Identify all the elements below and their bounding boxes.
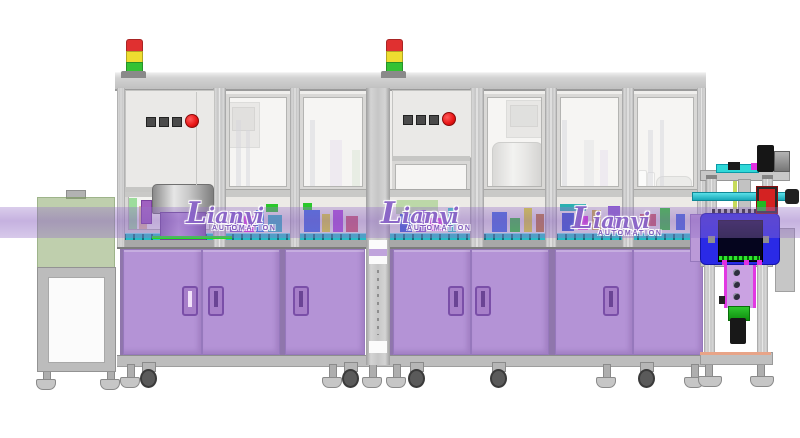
column-hole: [733, 281, 740, 288]
caster-wheel: [138, 362, 158, 390]
gantry-bolt-cap: [762, 175, 773, 179]
square-button[interactable]: [146, 117, 156, 127]
caster-wheel-disc: [140, 369, 157, 388]
leveling-foot: [120, 364, 140, 392]
cabinet-handle[interactable]: [293, 286, 309, 316]
caster-wheel: [488, 362, 508, 390]
foot-base: [362, 377, 382, 388]
foot-base: [322, 377, 342, 388]
cabinet-handle[interactable]: [182, 286, 198, 316]
junction-stripe: [369, 341, 387, 353]
linear-rail-tube: [692, 192, 798, 201]
control-panel-module1: [125, 90, 215, 189]
handle-slot: [188, 291, 192, 307]
gantry-black-slider: [728, 162, 740, 170]
handle-slot: [214, 291, 218, 307]
leveling-foot: [750, 363, 770, 391]
cabinet-door[interactable]: [633, 249, 703, 355]
station-clamp: [719, 296, 725, 304]
gantry-bolt-cap: [706, 175, 717, 179]
window-module2-center: [484, 94, 545, 190]
station-magenta-pin: [757, 260, 762, 265]
station-purple-column: [724, 263, 756, 308]
handle-slot: [299, 291, 303, 307]
gripper-black-cylinder: [730, 318, 746, 344]
handle-slot: [481, 291, 485, 307]
station-magenta-pin: [722, 260, 727, 265]
handle-slot: [609, 291, 613, 307]
caster-wheel: [636, 362, 656, 390]
leveling-foot: [698, 363, 718, 391]
servo-motor: [757, 145, 774, 172]
enclosure-top-beam: [115, 72, 706, 91]
station-post: [704, 263, 715, 362]
table-edge: [117, 240, 706, 249]
handle-slot: [454, 291, 458, 307]
foot-base: [100, 379, 120, 390]
window-module2-far-right: [634, 94, 697, 190]
caster-wheel-disc: [342, 369, 359, 388]
square-button[interactable]: [172, 117, 182, 127]
square-button[interactable]: [416, 115, 426, 125]
column-hole: [733, 269, 740, 276]
junction-stripe: [369, 256, 387, 264]
leveling-foot: [386, 364, 406, 392]
cabinet-door[interactable]: [555, 249, 633, 355]
window-module2-right: [557, 94, 622, 190]
panel-sill: [392, 156, 470, 161]
caster-wheel-disc: [638, 369, 655, 388]
leveling-foot: [362, 364, 382, 392]
caster-wheel: [406, 362, 426, 390]
window-module1-right: [300, 94, 366, 190]
rail-end-knob: [785, 189, 799, 204]
emergency-stop-button[interactable]: [185, 114, 199, 128]
column-hole: [733, 293, 740, 300]
emergency-stop-button[interactable]: [442, 112, 456, 126]
caster-wheel-disc: [408, 369, 425, 388]
cabinet-handle[interactable]: [208, 286, 224, 316]
cabinet-handle[interactable]: [603, 286, 619, 316]
leveling-foot: [596, 364, 616, 392]
foot-base: [386, 377, 406, 388]
cabinet-handle[interactable]: [475, 286, 491, 316]
caster-wheel-disc: [490, 369, 507, 388]
junction-bolt-line: [377, 270, 379, 335]
station-salmon-trim: [700, 352, 771, 355]
square-button[interactable]: [429, 115, 439, 125]
caster-wheel: [340, 362, 360, 390]
station-post: [757, 263, 768, 362]
highlight-band: [0, 207, 800, 238]
foot-base: [120, 377, 140, 388]
foot-base: [698, 376, 722, 387]
square-button[interactable]: [159, 117, 169, 127]
signal-tower-base: [121, 71, 146, 78]
square-button[interactable]: [403, 115, 413, 125]
foot-base: [750, 376, 774, 387]
infeed-stand-panel: [48, 277, 105, 363]
panel-seam: [196, 92, 197, 185]
leveling-foot: [322, 364, 342, 392]
foot-base: [596, 377, 616, 388]
junction-stripe-purple: [369, 249, 387, 256]
cabinet-handle[interactable]: [448, 286, 464, 316]
automation-line-render: Lianyi AUTOMATION Lianyi AUTOMATION Lian…: [0, 0, 800, 438]
window-module1-center: [226, 94, 290, 190]
motor-flange: [774, 151, 790, 172]
signal-tower-base: [381, 71, 406, 78]
station-magenta-pin: [744, 260, 749, 265]
foot-base: [36, 379, 56, 390]
junction-stripe: [369, 240, 387, 249]
